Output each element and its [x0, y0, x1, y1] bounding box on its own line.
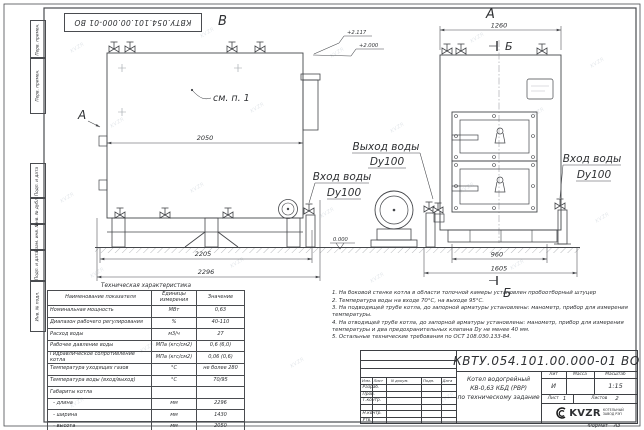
col-list: Лист [374, 378, 384, 383]
valve-icon [537, 44, 547, 54]
inlet-dn: Dy100 [327, 187, 362, 199]
product-name: Котел водогрейный КВ-0,63 КБД (РВР) по т… [456, 371, 541, 423]
dim-side-base: 2205 [195, 250, 212, 258]
col-podp: Подп. [423, 378, 435, 383]
valve-icon [555, 199, 565, 209]
frame-box-perv-primen-2: Перв. примен. [30, 57, 46, 114]
spec-row: Температура уходящих газов°Сне более 280 [48, 364, 244, 376]
frame-box-inv-podl: Инв. № подл. [30, 280, 46, 332]
dim-front-width: 1260 [491, 22, 508, 30]
scale-value: 1:15 [594, 378, 637, 394]
rotated-doc-number: КВТУ.054.101.00.000-01 ВО [74, 18, 191, 27]
spec-row: Гидравлическое сопротивление котлаМПа (к… [48, 352, 244, 364]
row-razrab: Разраб. [363, 385, 380, 390]
elevation-zero: 0.000 [333, 237, 349, 243]
view-arrow-label: А [77, 108, 86, 122]
valve-icon [424, 202, 434, 212]
valve-icon [442, 44, 452, 54]
pipe-labels: Выход воды Dy100 Вход воды Dy100 Вход во… [309, 141, 621, 203]
dim-front-total: 1605 [491, 265, 508, 273]
ground-line [95, 248, 580, 254]
spec-table: Техническая характеристика Наименование … [47, 283, 245, 430]
inlet-right-dn: Dy100 [577, 169, 612, 181]
title-block-doc-number: КВТУ.054.101.00.000-01 ВО [456, 351, 637, 371]
note-5: 5. Остальные технические требования по О… [332, 334, 638, 341]
listov-label: Листов [591, 396, 607, 401]
logo-subtitle: КОТЕЛЬНЫЙ ЗАВОД РЭП [603, 409, 624, 417]
spec-row: Диапазон рабочего регулирования%40-110 [48, 318, 244, 330]
note-4: 4. На отводящей трубе котла, до запорной… [332, 320, 638, 334]
inlet-right-label: Вход воды [563, 153, 622, 165]
spec-row: Рабочее давление водыМПа (кгс/см2)0,6 (6… [48, 341, 244, 353]
dim-side-total: 2296 [198, 268, 215, 276]
outlet-label: Выход воды [353, 141, 420, 153]
frame-box-vzam-inv: Взам. инв. № [30, 223, 46, 251]
dim-side-width: 2050 [197, 134, 214, 142]
col-izm: Изм. [362, 378, 371, 383]
spec-row: - ширинамм1430 [48, 410, 244, 422]
technical-notes: 1. На боковой стенке котла в области топ… [332, 290, 638, 342]
spec-row: Номинальная мощностьМВт0,63 [48, 306, 244, 318]
view-label-front: А [485, 7, 495, 22]
valve-icon [223, 208, 233, 218]
note-1: 1. На боковой стенке котла в области топ… [332, 290, 638, 297]
row-prov: Пров. [363, 392, 376, 397]
frame-box-inv-dubl: Инв. № дубл. [30, 197, 46, 225]
valve-icon [456, 44, 466, 54]
inlet-label: Вход воды [313, 171, 372, 183]
view-label-side: В [218, 14, 227, 29]
coil-logo-icon [554, 406, 567, 421]
outlet-dn: Dy100 [370, 156, 405, 168]
row-utv: Утв. [363, 418, 372, 423]
see-note-label: см. п. 1 [213, 93, 250, 104]
frame-box-podp-data-2: Подп. и дата [30, 249, 46, 282]
col-ndoc: N докум. [391, 378, 409, 383]
spec-row: Габариты котла [48, 387, 244, 399]
spec-row: Температура воды (вход/выход)°С70/95 [48, 376, 244, 388]
spec-row: - высотамм2050 [48, 422, 244, 430]
frame-box-perv-primen-1: Перв. примен. [30, 20, 46, 59]
valve-icon [115, 208, 125, 218]
valve-icon [433, 203, 443, 213]
side-view-valves [109, 42, 265, 218]
elevation-top: +2.117 [347, 30, 367, 36]
elevation-mid: +2.000 [359, 43, 379, 49]
spec-row: Расход водым3/ч27 [48, 329, 244, 341]
rotated-doc-number-box: КВТУ.054.101.00.000-01 ВО [64, 13, 202, 32]
front-view [434, 40, 571, 244]
masshtab-label: Масштаб [594, 371, 637, 378]
list-value: 1 [563, 396, 567, 402]
elevation-texts: +2.117 +2.000 0.000 [333, 30, 379, 243]
listov-value: 2 [615, 396, 619, 402]
row-nkontr: Н.контр. [363, 411, 382, 416]
section-label-top: Б [505, 40, 513, 53]
note-3: 3. На подводящей трубе котла, до запорно… [332, 305, 638, 319]
valve-icon [255, 42, 265, 52]
valve-icon [160, 208, 170, 218]
drawing-sheet: KVZR KVZR KVZR KVZR KVZR KVZR KVZR KVZR … [0, 0, 644, 430]
note-2: 2. Температура воды на входе 70°С, на вы… [332, 298, 638, 305]
valve-icon [125, 42, 135, 52]
company-logo: KVZR КОТЕЛЬНЫЙ ЗАВОД РЭП [541, 403, 637, 423]
lit-label: Лит [541, 371, 566, 378]
row-tkontr: Т.контр. [363, 398, 382, 403]
logo-text: KVZR [569, 408, 601, 419]
dimension-texts: 2050 2205 2296 1260 960 1605 [195, 22, 508, 277]
dim-front-base: 960 [491, 251, 503, 259]
massa-label: Масса [566, 371, 594, 378]
title-block: Изм. Лист N докум. Подп. Дата Разраб. Пр… [360, 350, 638, 424]
list-label: Лист [548, 396, 559, 401]
spec-header-row: Наименование показателя Единицы измерени… [48, 291, 244, 306]
col-data: Дата [443, 378, 453, 383]
burner-flange [371, 191, 417, 247]
side-view [99, 53, 320, 247]
format-label: Формат А3 [566, 423, 642, 429]
valve-icon [304, 204, 314, 214]
valve-icon [227, 42, 237, 52]
valve-icon [109, 42, 119, 52]
spec-table-title: Техническая характеристика [47, 283, 245, 289]
frame-box-podp-data-1: Подп. и дата [30, 163, 46, 199]
spec-row: - длинамм2296 [48, 399, 244, 411]
lit-value: И [541, 378, 566, 394]
